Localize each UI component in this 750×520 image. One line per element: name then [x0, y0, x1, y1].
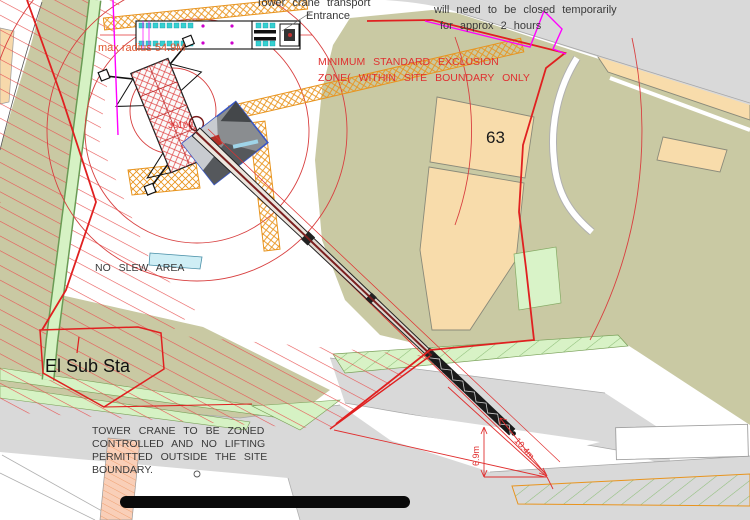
building-63-label: 63 — [486, 128, 505, 147]
zone-note-line3: PERMITTED OUTSIDE THE SITE — [92, 451, 267, 463]
exclusion-note-line1: MINIMUM STANDARD EXCLUSION — [318, 56, 499, 68]
site-plan-drawing: Tower crane transport Entrance will need… — [0, 0, 750, 520]
green-patch — [514, 247, 561, 310]
zone-note-line2: CONTROLLED AND NO LIFTING — [92, 438, 265, 450]
site-plan-page: Tower crane transport Entrance will need… — [0, 0, 750, 520]
exclusion-note-line2: ZONE( WITHIN SITE BOUNDARY ONLY — [318, 72, 530, 84]
zone-note-line4: BOUNDARY. — [92, 464, 153, 476]
compound-outline — [616, 424, 749, 459]
substation-label: El Sub Sta — [45, 356, 131, 376]
radius-label: max radius 54.9M — [98, 42, 185, 54]
entrance-note-line1: Tower crane transport — [256, 0, 370, 9]
dim-offset-label: 6.9m — [471, 446, 481, 466]
dim-small-label: 30100 — [168, 120, 193, 130]
scale-bar — [120, 496, 410, 508]
entrance-note-line2: Entrance — [306, 10, 350, 22]
closure-note-line2: for approx 2 hours — [440, 20, 542, 32]
no-slew-label: NO SLEW AREA — [95, 262, 184, 274]
closure-note-line1: will need to be closed temporarily — [433, 4, 617, 16]
zone-note-line1: TOWER CRANE TO BE ZONED — [92, 425, 265, 437]
